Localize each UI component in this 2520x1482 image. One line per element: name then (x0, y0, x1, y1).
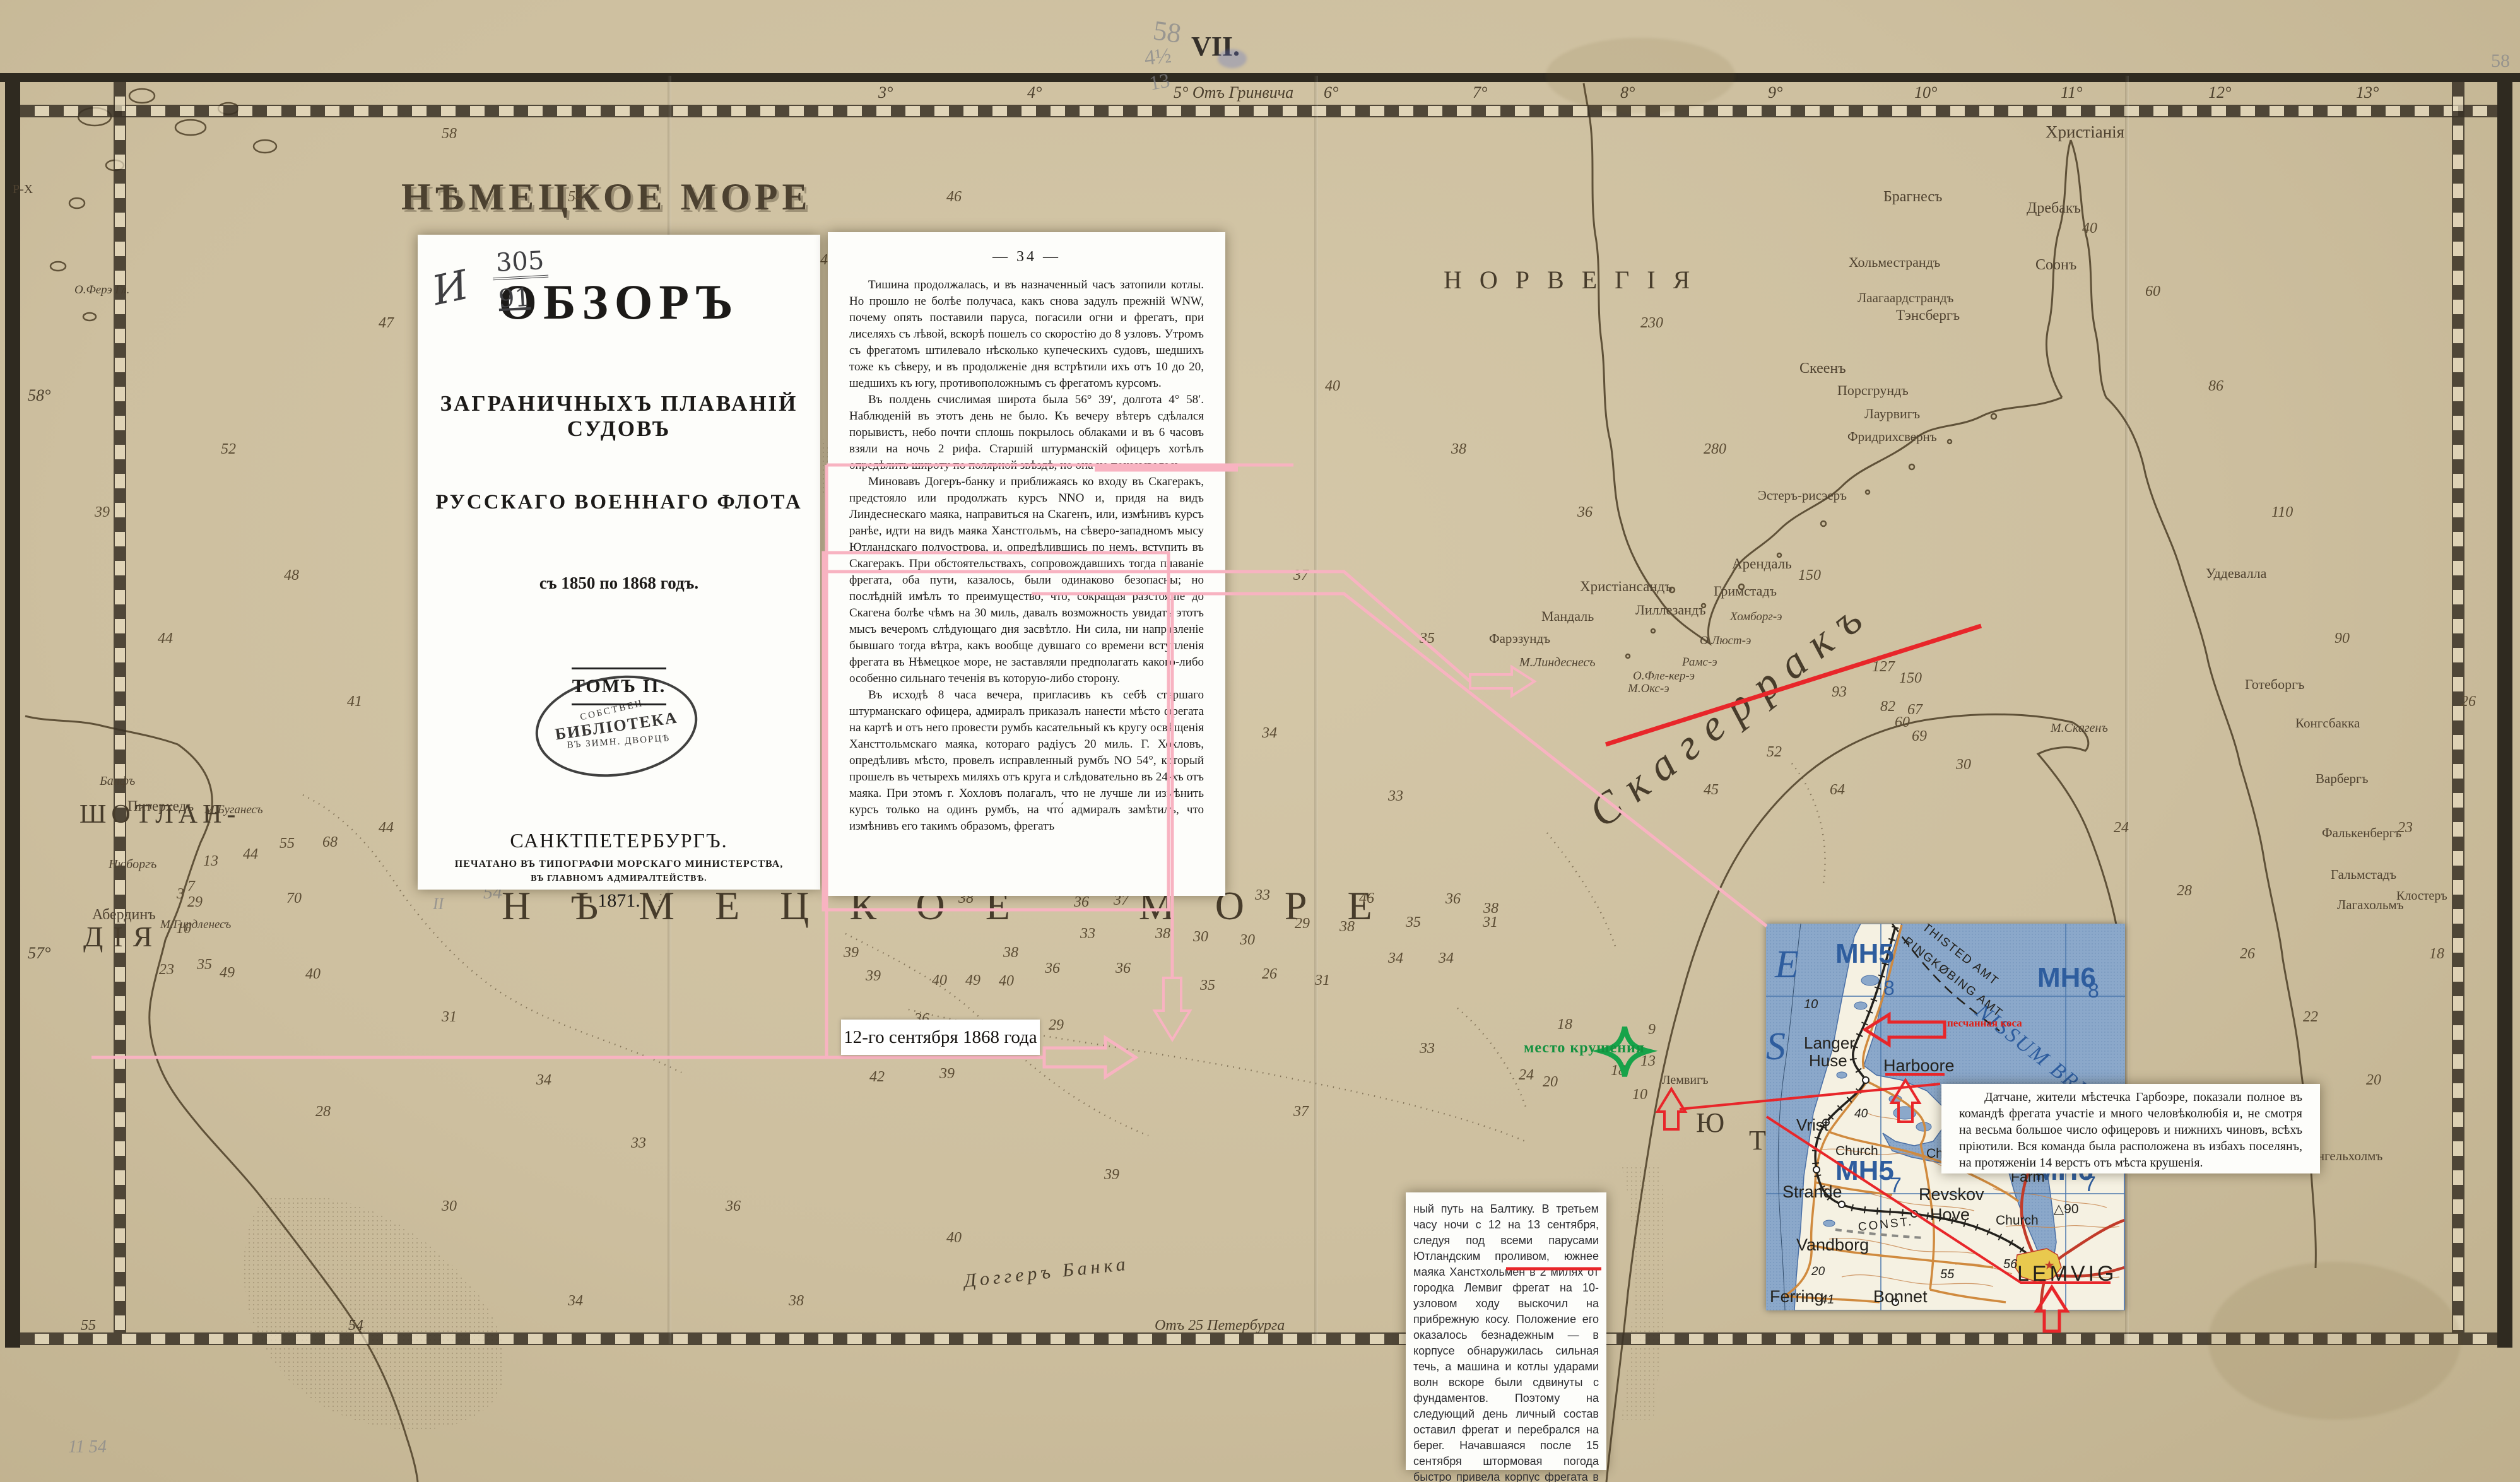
bottom-tick-label: 55 (81, 1317, 96, 1334)
longitude-tick-label: 6° (1324, 83, 1338, 102)
depth-sounding: 39 (844, 945, 859, 960)
depth-sounding: 86 (2208, 379, 2223, 394)
inset-map-label: 7 (1890, 1175, 1902, 1196)
depth-sounding: 20 (1543, 1074, 1558, 1090)
depth-sounding: 47 (379, 315, 394, 331)
depth-sounding: 38 (1155, 926, 1170, 941)
map-place-label: Мандаль (1541, 609, 1594, 623)
depth-sounding: 37 (1293, 1104, 1309, 1119)
longitude-tick-label: 9° (1768, 83, 1782, 102)
depth-sounding: 23 (159, 962, 174, 977)
depth-sounding: 52 (221, 442, 236, 457)
map-place-label: Эстеръ-рисэеръ (1758, 489, 1847, 502)
page34-document: — 34 — Тишина продолжалась, и въ назначе… (828, 232, 1225, 896)
book-years: съ 1850 по 1868 годъ. (418, 573, 820, 593)
book-title: ОБЗОРЪ (418, 274, 820, 331)
depth-sounding: 45 (1704, 782, 1719, 797)
depth-sounding: 36 (1445, 891, 1461, 907)
map-place-label: Фридрихсвернъ (1847, 430, 1937, 444)
depth-sounding: 10 (1632, 1087, 1647, 1102)
map-place-label: Порсгрундъ (1837, 384, 1909, 397)
inset-map-label: Vandborg (1796, 1237, 1869, 1254)
page34-paragraph: Въ исходѣ 8 часа вечера, пригласивъ къ с… (849, 687, 1204, 835)
inset-map-label: 55 (1940, 1268, 1954, 1281)
depth-sounding: 38 (1451, 442, 1466, 457)
depth-sounding: 36 (726, 1199, 741, 1214)
depth-sounding: 70 (286, 891, 302, 906)
depth-sounding: 34 (1388, 951, 1403, 966)
sea-region-label: 11 54 (68, 1438, 107, 1456)
map-place-label: Брагнесъ (1883, 189, 1942, 204)
frame-band-top (0, 73, 2520, 82)
chart-title: НѢМЕЦКОЕ МОРЕ (401, 175, 811, 219)
inset-map-label: Bonnet (1873, 1288, 1928, 1305)
depth-sounding: 60 (1895, 715, 1910, 730)
depth-sounding: 18 (1611, 1063, 1626, 1078)
fold-crease (1314, 76, 1318, 1344)
map-place-label: М.Буганесъ (204, 804, 263, 816)
inset-map-label: 10 (1804, 998, 1818, 1011)
page34-paragraph: Миновавъ Догеръ-банку и приближаясь ко в… (849, 474, 1204, 687)
depth-sounding: 9 (1648, 1022, 1656, 1037)
inset-map-label: Church (1996, 1214, 2039, 1227)
longitude-tick-label: 3° (878, 83, 893, 102)
longitude-tick-label: 11° (2061, 83, 2082, 102)
bottom-tick-label: 54 (348, 1317, 363, 1334)
longitude-tick-label: 7° (1473, 83, 1487, 102)
imprint-line1: ПЕЧАТАНО ВЪ ТИПОГРАФІИ МОРСКАГО МИНИСТЕР… (418, 859, 820, 870)
inset-map-label: 7 (2084, 1173, 2096, 1195)
map-place-label: Клостеръ (2396, 890, 2447, 902)
paper-stain (1546, 38, 1735, 114)
handwritten-shelfmark-top: 305 (492, 246, 549, 281)
map-place-label: Уддевалла (2206, 567, 2266, 580)
map-place-label: Питерхедъ (127, 799, 194, 813)
depth-sounding: 39 (95, 505, 110, 520)
depth-sounding: 28 (2177, 883, 2192, 898)
depth-sounding: 28 (315, 1104, 331, 1119)
depth-sounding: 35 (197, 957, 212, 972)
map-place-label: Тэнсбергъ (1896, 308, 1960, 322)
depth-sounding: 29 (1049, 1018, 1064, 1033)
depth-sounding: 10 (176, 921, 191, 936)
depth-sounding: 18 (1557, 1017, 1572, 1032)
inset-map-label: 40 (1854, 1108, 1868, 1120)
date-annotation-label: 12-го сентября 1868 года (841, 1020, 1040, 1055)
page34-paragraph: Въ полдень счислимая широта была 56° 39′… (849, 392, 1204, 474)
rule (572, 667, 666, 669)
depth-sounding: 30 (1240, 932, 1255, 948)
depth-sounding: 26 (1262, 967, 1277, 982)
depth-sounding: 26 (2461, 694, 2476, 709)
inset-map-label: Hove (1930, 1206, 1970, 1223)
depth-sounding: 23 (2398, 820, 2413, 835)
map-place-label: Хольместрандъ (1849, 256, 1940, 269)
longitude-tick-label: 12° (2208, 83, 2231, 102)
wreck-site-label: место крушения (1524, 1040, 1645, 1057)
inset-map-label: S (1766, 1027, 1786, 1066)
depth-sounding: 150 (1899, 671, 1922, 686)
depth-sounding: 40 (2082, 221, 2097, 236)
depth-sounding: 49 (965, 973, 980, 988)
map-place-label: Енгельхолмъ (2309, 1150, 2382, 1163)
map-place-label: Христіанія (2046, 124, 2124, 141)
depth-sounding: 127 (1872, 659, 1895, 674)
title-page-document: И 305 91 ОБЗОРЪ ЗАГРАНИЧНЫХЪ ПЛАВАНІЙ СУ… (418, 235, 820, 890)
map-place-label: Фалькенбергъ (2322, 826, 2401, 840)
depth-sounding: 40 (1325, 379, 1340, 394)
depth-sounding: 46 (946, 189, 962, 204)
map-place-label: Соонъ (2035, 257, 2076, 273)
sea-region-label: Р-Х (13, 183, 33, 196)
depth-sounding: 48 (284, 568, 299, 583)
map-place-label: Христіансандъ (1580, 579, 1672, 594)
latitude-tick-label: 58° (28, 386, 50, 405)
inset-map-label: Langer (1804, 1035, 1855, 1051)
inset-map-label: Revskov (1919, 1186, 1984, 1203)
longitude-tick-label: 10° (1914, 83, 1937, 102)
map-place-label: М.Гирдленесъ (160, 919, 231, 931)
frame-band-left (5, 73, 20, 1348)
inset-map-label: 20 (1811, 1266, 1825, 1278)
inset-map-label: △90 (2054, 1203, 2079, 1216)
inset-map-label: Strande (1782, 1184, 1842, 1201)
depth-sounding: 280 (1704, 442, 1726, 457)
depth-sounding: 46 (1359, 891, 1374, 906)
sea-region-label: 58 (1151, 16, 1183, 48)
depth-sounding: 36 (1577, 505, 1593, 520)
inset-map-label: 8 (2088, 980, 2099, 1001)
map-place-label: Лиллезандъ (1635, 603, 1705, 617)
sea-region-label: НОРВЕГІЯ (1444, 268, 1707, 293)
depth-sounding: 7 (187, 879, 195, 894)
inset-map-label: MH6 (2037, 964, 2096, 992)
depth-sounding: 24 (2114, 820, 2129, 835)
handwritten-shelfmark-bottom: 91 (498, 283, 531, 314)
depth-sounding: 39 (1104, 1167, 1119, 1182)
wreck-story-text: ный путь на Балтику. В третьем часу ночи… (1413, 1201, 1599, 1482)
depth-sounding: 58 (442, 126, 457, 141)
depth-sounding: 82 (1880, 699, 1895, 714)
latitude-tick-label: 57° (28, 944, 50, 963)
depth-sounding: 31 (1483, 915, 1498, 930)
map-place-label: Дребакъ (2027, 201, 2081, 216)
map-place-label: Хомборг-э (1730, 611, 1782, 623)
depth-sounding: 24 (1519, 1067, 1534, 1083)
depth-sounding: 38 (1339, 919, 1355, 934)
depth-sounding: 36 (1074, 895, 1089, 910)
map-place-label: Конгсбакка (2295, 717, 2360, 730)
inset-map-label: MH5 (1835, 1157, 1894, 1185)
wreck-story-note: ный путь на Балтику. В третьем часу ночи… (1406, 1192, 1606, 1470)
map-place-label: Лагахольмъ (2337, 898, 2404, 912)
depth-sounding: 34 (536, 1073, 551, 1088)
depth-sounding: 35 (1406, 915, 1421, 930)
depth-sounding: 44 (158, 631, 173, 646)
depth-sounding: 90 (2335, 631, 2350, 646)
depth-sounding: 34 (1262, 726, 1277, 741)
depth-sounding: 230 (1640, 315, 1663, 331)
depth-sounding: 33 (631, 1136, 646, 1151)
depth-sounding: 33 (1080, 926, 1095, 941)
depth-sounding: 30 (1193, 929, 1208, 944)
map-place-label: Абердинъ (92, 907, 156, 922)
depth-sounding: 110 (2271, 505, 2293, 520)
page34-text: Тишина продолжалась, и въ назначенный ча… (849, 277, 1204, 835)
depth-sounding: 18 (2429, 946, 2444, 962)
inset-map-label: 41 (1820, 1293, 1834, 1306)
sea-region-label: 13 (1148, 70, 1171, 93)
depth-sounding: 33 (1420, 1041, 1435, 1056)
depth-sounding: 44 (379, 820, 394, 835)
sea-region-label: О.Ферэ Гл. (74, 284, 129, 296)
inset-map-label: Harboore (1883, 1057, 1955, 1074)
map-place-label: Лаагаардстрандъ (1858, 291, 1953, 305)
imprint-line2: ВЪ ГЛАВНОМЪ АДМИРАЛТЕЙСТВѢ. (418, 874, 820, 884)
inset-map-label: 8 (1883, 978, 1895, 998)
depth-sounding: 60 (2145, 284, 2160, 299)
depth-sounding: 26 (2240, 946, 2255, 962)
depth-sounding: 31 (442, 1009, 457, 1025)
depth-sounding: 22 (2303, 1009, 2318, 1025)
book-subtitle-1: ЗАГРАНИЧНЫХЪ ПЛАВАНІЙ СУДОВЪ (418, 391, 820, 442)
sea-region-label: ДІЯ (83, 922, 162, 951)
depth-sounding: 68 (322, 835, 338, 850)
depth-sounding: 44 (243, 847, 258, 862)
depth-sounding: 40 (946, 1230, 962, 1245)
imprint-city: САНКТПЕТЕРБУРГЪ. (418, 829, 820, 852)
depth-sounding: 40 (932, 973, 947, 988)
map-place-label: О.Фле-кер-э (1633, 670, 1695, 682)
depth-sounding: 30 (1956, 757, 1971, 772)
depth-sounding: 64 (1830, 782, 1845, 797)
map-place-label: О.Люст-э (1700, 635, 1751, 647)
inset-map-label: Ferring (1770, 1288, 1824, 1305)
bottom-tick-label: Отъ 25 Петербурга (1155, 1317, 1285, 1334)
depth-sounding: 93 (1832, 685, 1847, 700)
ink-smudge (1218, 49, 1247, 68)
page-number: — 34 — (828, 249, 1225, 266)
depth-sounding: 33 (1388, 789, 1403, 804)
map-place-label: Гальмстадъ (2331, 868, 2396, 881)
depth-sounding: 38 (789, 1293, 804, 1309)
inset-map-label: Vrist (1796, 1117, 1828, 1133)
historic-nautical-chart-composite: 3°4°5° Отъ Гринвича6°7°8°9°10°11°12°13° … (0, 0, 2520, 1482)
map-place-label: Фарэзундъ (1489, 632, 1550, 645)
longitude-tick-label: 4° (1027, 83, 1042, 102)
depth-sounding: 54 (568, 189, 583, 204)
inset-map-label: LEMVIG (2017, 1263, 2117, 1285)
sea-region-label: 4½ (1143, 45, 1172, 69)
map-place-label: Гримстадъ (1714, 584, 1777, 598)
map-place-label: М.Окс-э (1628, 683, 1669, 695)
depth-sounding: 38 (1003, 945, 1018, 960)
depth-sounding: 3 (177, 886, 184, 902)
sea-region-label: 58 (2491, 52, 2510, 71)
page34-paragraph: Тишина продолжалась, и въ назначенный ча… (849, 277, 1204, 392)
harboore-note-text: Датчане, жители мѣстечка Гарбоэре, показ… (1959, 1089, 2302, 1171)
depth-sounding: 39 (866, 968, 881, 984)
old-map-coastlines (0, 0, 2520, 1482)
map-place-label: Лемвигъ (1662, 1074, 1709, 1086)
book-subtitle-2: РУССКАГО ВОЕННАГО ФЛОТА (418, 491, 820, 514)
map-place-label: Нюборгъ (109, 858, 156, 871)
depth-sounding: 40 (305, 967, 321, 982)
inset-map-label: 56 (2003, 1258, 2017, 1271)
depth-sounding: 31 (1315, 973, 1330, 988)
map-place-label: Рамс-э (1682, 656, 1717, 668)
depth-sounding: 36 (1116, 961, 1131, 976)
scale-ticks-left (114, 82, 126, 1332)
depth-sounding: 34 (568, 1293, 583, 1309)
depth-sounding: 41 (347, 694, 362, 709)
map-place-label: Лаурвигъ (1864, 407, 1920, 421)
paper-stain (2208, 1262, 2461, 1420)
map-place-label: М.Линдеснесъ (1519, 656, 1596, 669)
inset-map-label: Church (1835, 1144, 1878, 1158)
depth-sounding: 29 (1295, 916, 1310, 931)
depth-sounding: 150 (1798, 568, 1821, 583)
depth-sounding: 13 (203, 854, 218, 869)
depth-sounding: 52 (1767, 744, 1782, 760)
longitude-tick-label: 13° (2356, 83, 2379, 102)
map-place-label: Скеенъ (1799, 361, 1846, 376)
depth-sounding: 39 (939, 1066, 955, 1081)
inset-map-label: Huse (1809, 1052, 1847, 1069)
map-place-label: Готеборгъ (2245, 678, 2304, 691)
frame-band-right (2497, 73, 2512, 1348)
depth-sounding: 49 (220, 965, 235, 980)
longitude-tick-label: 5° Отъ Гринвича (1174, 83, 1293, 102)
depth-sounding: 55 (280, 836, 295, 851)
depth-sounding: 33 (1255, 888, 1270, 903)
sand-spit-label: песчанная коса (1947, 1017, 2022, 1030)
depth-sounding: 40 (999, 973, 1014, 989)
harboore-note: Датчане, жители мѣстечка Гарбоэре, показ… (1941, 1084, 2320, 1173)
sea-region-label: Ю (1696, 1109, 1724, 1137)
depth-sounding: 30 (442, 1199, 457, 1214)
depth-sounding: 36 (1045, 961, 1060, 976)
inset-map-label: MH5 (1835, 940, 1894, 968)
depth-sounding: 42 (869, 1069, 885, 1085)
inset-map-label: E (1775, 945, 1799, 984)
sea-region-label: Т (1749, 1127, 1766, 1155)
depth-sounding: 29 (187, 895, 203, 910)
map-place-label: Банфъ (100, 775, 135, 787)
depth-sounding: 34 (1439, 951, 1454, 966)
depth-sounding: 20 (2366, 1073, 2381, 1088)
map-place-label: Арендаль (1732, 556, 1792, 571)
depth-sounding: 37 (1293, 568, 1309, 583)
depth-sounding: 35 (1200, 978, 1215, 993)
depth-sounding: 69 (1912, 729, 1927, 744)
map-place-label: Варбергъ (2316, 772, 2369, 785)
depth-sounding: 35 (1420, 631, 1435, 646)
imprint-year: 1871. (418, 890, 820, 912)
map-place-label: М.Скагенъ (2051, 722, 2108, 734)
